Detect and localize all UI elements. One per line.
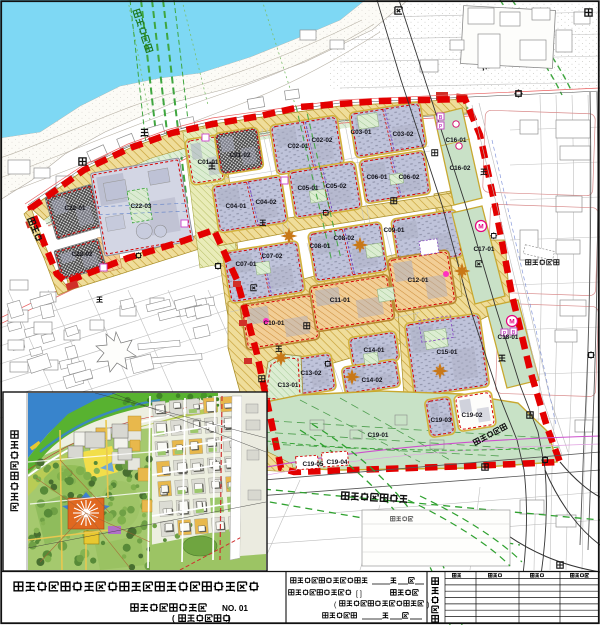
svg-text:C18-01: C18-01 [498, 334, 519, 341]
svg-text:C08-01: C08-01 [310, 243, 331, 250]
svg-text:(: ( [172, 614, 175, 623]
svg-text:C11-01: C11-01 [330, 297, 351, 304]
svg-text:C16-01: C16-01 [446, 137, 467, 144]
svg-text:C19-02: C19-02 [462, 412, 483, 419]
svg-text:[ ]: [ ] [356, 591, 362, 598]
svg-text:C19-04: C19-04 [327, 459, 348, 466]
svg-text:C03-02: C03-02 [393, 131, 414, 138]
svg-text:M: M [478, 224, 483, 231]
svg-text:C16-02: C16-02 [450, 165, 471, 172]
svg-text:C07-02: C07-02 [262, 253, 283, 260]
svg-text:C19-03: C19-03 [431, 417, 452, 424]
svg-text:B: B [439, 115, 443, 121]
svg-text:C04-02: C04-02 [256, 199, 277, 206]
svg-text:C02-01: C02-01 [288, 143, 309, 150]
svg-text:C10-01: C10-01 [264, 320, 285, 327]
svg-text:C17-01: C17-01 [474, 246, 495, 253]
svg-text:C14-01: C14-01 [364, 347, 385, 354]
svg-text:C22-02: C22-02 [72, 251, 93, 258]
svg-text:C19-01: C19-01 [368, 432, 389, 439]
svg-text:C22-03: C22-03 [131, 203, 152, 210]
svg-text:C04-01: C04-01 [226, 203, 247, 210]
svg-text:C05-01: C05-01 [298, 185, 319, 192]
svg-text:C07-01: C07-01 [236, 261, 257, 268]
svg-text:): ) [427, 602, 429, 609]
svg-text:C02-02: C02-02 [312, 137, 333, 144]
svg-text:NO. 01: NO. 01 [222, 604, 248, 613]
svg-text:C13-01: C13-01 [278, 382, 299, 389]
svg-text:M: M [509, 319, 514, 326]
svg-text:C05-02: C05-02 [326, 183, 347, 190]
svg-text:C12-01: C12-01 [408, 277, 429, 284]
svg-text:C01-02: C01-02 [230, 152, 251, 159]
svg-text:C06-02: C06-02 [399, 174, 420, 181]
svg-text:C08-02: C08-02 [334, 235, 355, 242]
svg-text:C15-01: C15-01 [437, 349, 458, 356]
svg-text:C22-01: C22-01 [65, 205, 86, 212]
svg-text:C09-01: C09-01 [384, 227, 405, 234]
svg-text:): ) [228, 614, 231, 623]
svg-text:C03-01: C03-01 [351, 129, 372, 136]
svg-text:C14-02: C14-02 [362, 377, 383, 384]
svg-text:C19-05: C19-05 [303, 461, 324, 468]
svg-text:C01-01: C01-01 [198, 159, 219, 166]
svg-text:C06-01: C06-01 [367, 174, 388, 181]
svg-text:C13-02: C13-02 [301, 370, 322, 377]
